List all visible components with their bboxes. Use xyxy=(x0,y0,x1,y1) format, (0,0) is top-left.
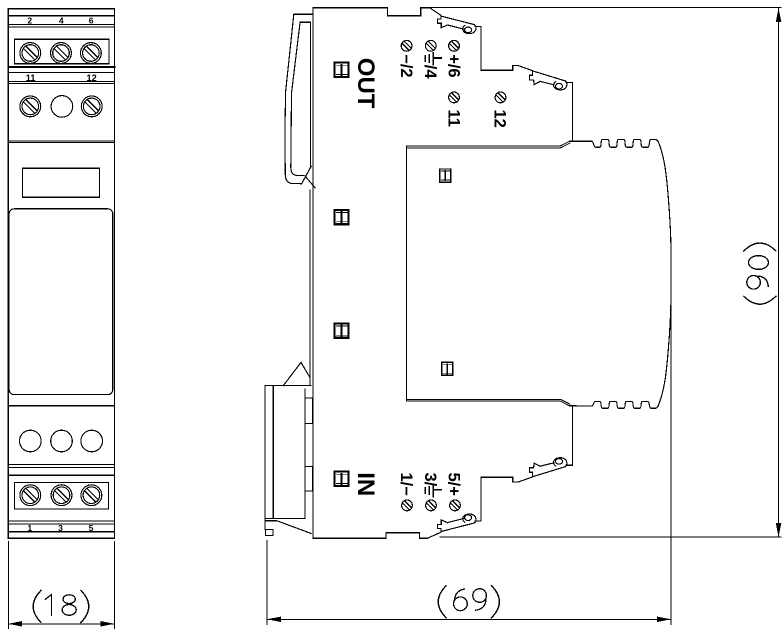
svg-text:3: 3 xyxy=(58,523,63,533)
svg-text:4: 4 xyxy=(59,16,64,26)
svg-text:/4: /4 xyxy=(421,65,439,80)
svg-text:2: 2 xyxy=(27,16,32,26)
svg-text:3/: 3/ xyxy=(421,473,439,487)
svg-text:6: 6 xyxy=(89,16,94,26)
svg-text:5: 5 xyxy=(89,523,94,533)
svg-text:1/−: 1/− xyxy=(397,473,415,496)
svg-text:+/6: +/6 xyxy=(444,54,462,77)
svg-text:11: 11 xyxy=(444,110,462,127)
svg-text:IN: IN xyxy=(352,472,379,496)
svg-text:5/+: 5/+ xyxy=(444,473,462,496)
svg-text:12: 12 xyxy=(491,110,509,128)
svg-text:−/2: −/2 xyxy=(397,54,415,77)
svg-text:1: 1 xyxy=(27,523,32,533)
svg-text:12: 12 xyxy=(86,73,96,83)
svg-text:11: 11 xyxy=(26,73,36,83)
svg-text:OUT: OUT xyxy=(352,58,379,109)
